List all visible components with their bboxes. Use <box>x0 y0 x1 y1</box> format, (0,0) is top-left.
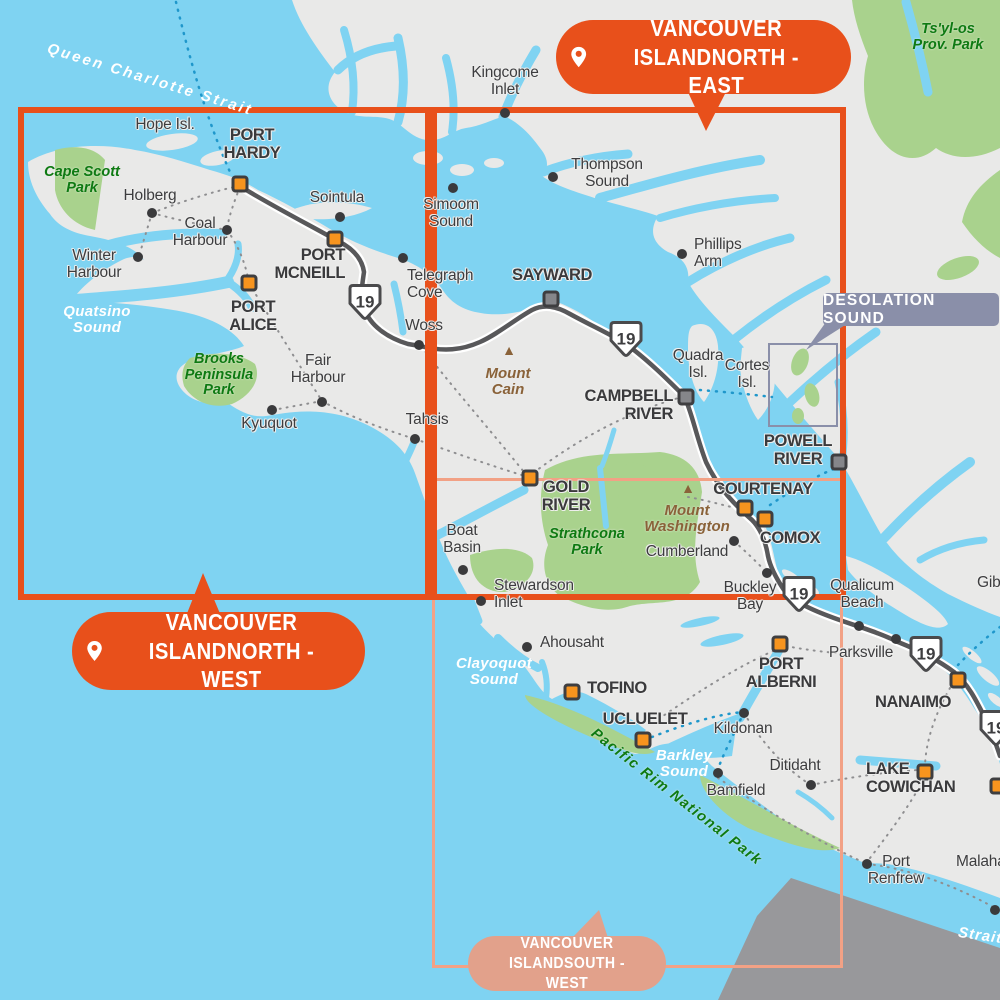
callout-text-north-east: VANCOUVER ISLANDNORTH - EAST <box>611 14 823 100</box>
map-area-callout-south-west[interactable]: VANCOUVER ISLANDSOUTH - WEST <box>468 936 666 991</box>
map-area-callout-north-west[interactable]: VANCOUVER ISLANDNORTH - WEST <box>72 612 365 690</box>
vancouver-island-map: HolbergCoalHarbourWinterHarbourSointulaT… <box>0 0 1000 1000</box>
map-pin-icon <box>570 39 587 75</box>
region-callout-text: DESOLATION SOUND <box>823 292 999 328</box>
callout-text-north-west: VANCOUVER ISLANDNORTH - WEST <box>126 608 336 694</box>
map-overlay: HolbergCoalHarbourWinterHarbourSointulaT… <box>0 0 1000 1000</box>
callout-text-south-west: VANCOUVER ISLANDSOUTH - WEST <box>492 934 642 994</box>
region-callout-desolation-sound: DESOLATION SOUND <box>823 293 999 326</box>
map-pin-icon <box>86 633 103 669</box>
callout-pointers <box>0 0 1000 1000</box>
map-area-callout-north-east[interactable]: VANCOUVER ISLANDNORTH - EAST <box>556 20 851 94</box>
